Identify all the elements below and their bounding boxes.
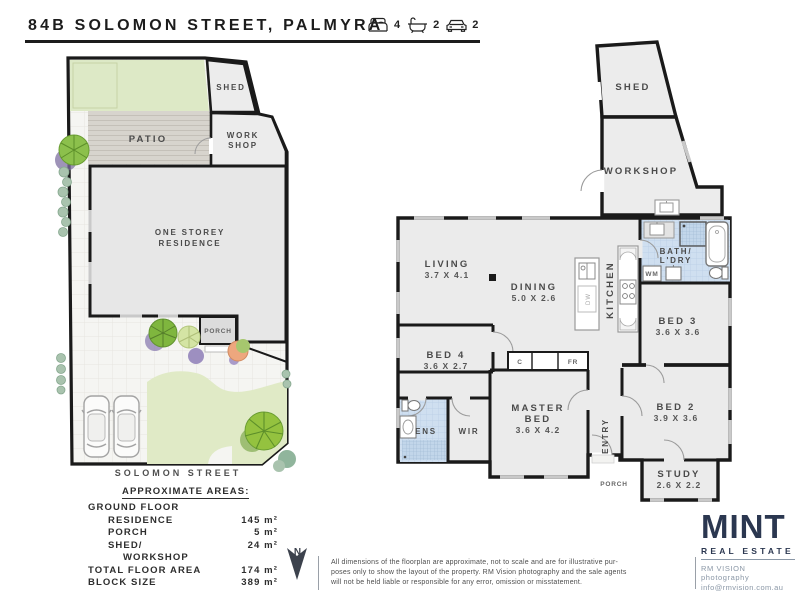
areas-row: BLOCK SIZE 389 m² [88,577,278,590]
master-dims: 3.6 X 4.2 [516,425,561,435]
bed2-label: BED 2 [657,402,696,413]
disclaimer-text: All dimensions of the floorplan are appr… [331,558,689,588]
bed3-label: BED 3 [659,316,698,327]
photography-email: info@rmvision.com.au [701,583,795,592]
living-dims: 3.7 X 4.1 [425,270,470,280]
fridge-label: FR [568,359,578,366]
site-residence [90,166,286,342]
site-shed-label: SHED [216,83,245,92]
lawn-top [70,60,209,111]
bed4-label: BED 4 [427,350,466,361]
site-workshop-label-2: SHOP [228,141,258,150]
areas-row: TOTAL FLOOR AREA 174 m² [88,565,278,578]
dining-dims: 5.0 X 2.6 [512,293,557,303]
compass: N [286,547,310,558]
workshop-sink [655,200,679,215]
divider-left [318,556,319,590]
site-plan: PATIO SHED WORK SHOP ONE STOREY RESIDENC… [55,58,296,478]
floor-plan: C FR DW [398,42,730,500]
dishwasher-label: DW [586,293,592,305]
photography-credit: RM VISION photography [701,564,795,582]
areas-heading: APPROXIMATE AREAS: [122,486,249,499]
brand-tagline: REAL ESTATE [701,546,795,560]
areas-row: SHED/ WORKSHOP 24 m² [88,540,278,565]
fp-shed [597,42,676,117]
areas-row: GROUND FLOOR [88,502,278,515]
cupboard-label: C [517,359,523,366]
fp-ens-shower [402,440,446,460]
bed4-dims: 3.6 X 2.7 [424,361,469,371]
kitchen-bench [618,246,638,332]
bed3-dims: 3.6 X 3.6 [656,327,701,337]
areas-table: APPROXIMATE AREAS: GROUND FLOOR RESIDENC… [88,486,278,590]
master-label-1: MASTER [511,403,564,414]
divider-right [695,557,696,589]
study-label: STUDY [657,469,700,480]
branding-block: MINT REAL ESTATE RM VISION photography i… [701,510,795,592]
patio-label: PATIO [129,134,168,145]
study-dims: 2.6 X 2.2 [657,480,702,490]
living-label: LIVING [425,259,470,270]
residence-label-1: ONE STOREY [155,228,225,237]
residence-label-2: RESIDENCE [159,239,222,248]
fp-porch-label: PORCH [600,481,627,488]
site-workshop-label-1: WORK [227,131,260,140]
kitchen-label: KITCHEN [605,261,616,319]
fp-workshop-label: WORKSHOP [604,166,679,177]
fp-post [489,274,496,281]
street-label: SOLOMON STREET [115,468,242,478]
fp-closets: C FR [508,352,588,370]
dining-label: DINING [511,282,557,293]
kitchen-island: DW [575,258,599,330]
car-2 [112,396,141,457]
areas-row: RESIDENCE 145 m² [88,515,278,528]
entry-label: ENTRY [601,418,610,454]
floorplan-page: 84B SOLOMON STREET, PALMYRA 4 2 2 [0,0,800,600]
mint-logo: MINT [701,510,795,543]
fp-shed-label: SHED [615,82,650,93]
site-porch-label: PORCH [204,328,231,335]
bath-label-1: BATH/ [660,247,693,256]
bed2-dims: 3.9 X 3.6 [654,413,699,423]
washing-machine-label: WM [645,271,658,278]
ens-label: ENS [415,427,437,436]
car-1 [82,396,111,457]
bath-label-2: L'DRY [660,256,692,265]
areas-row: PORCH 5 m² [88,527,278,540]
wir-label: WIR [459,427,480,436]
master-label-2: BED [525,414,552,425]
north-arrow-icon [286,547,308,581]
